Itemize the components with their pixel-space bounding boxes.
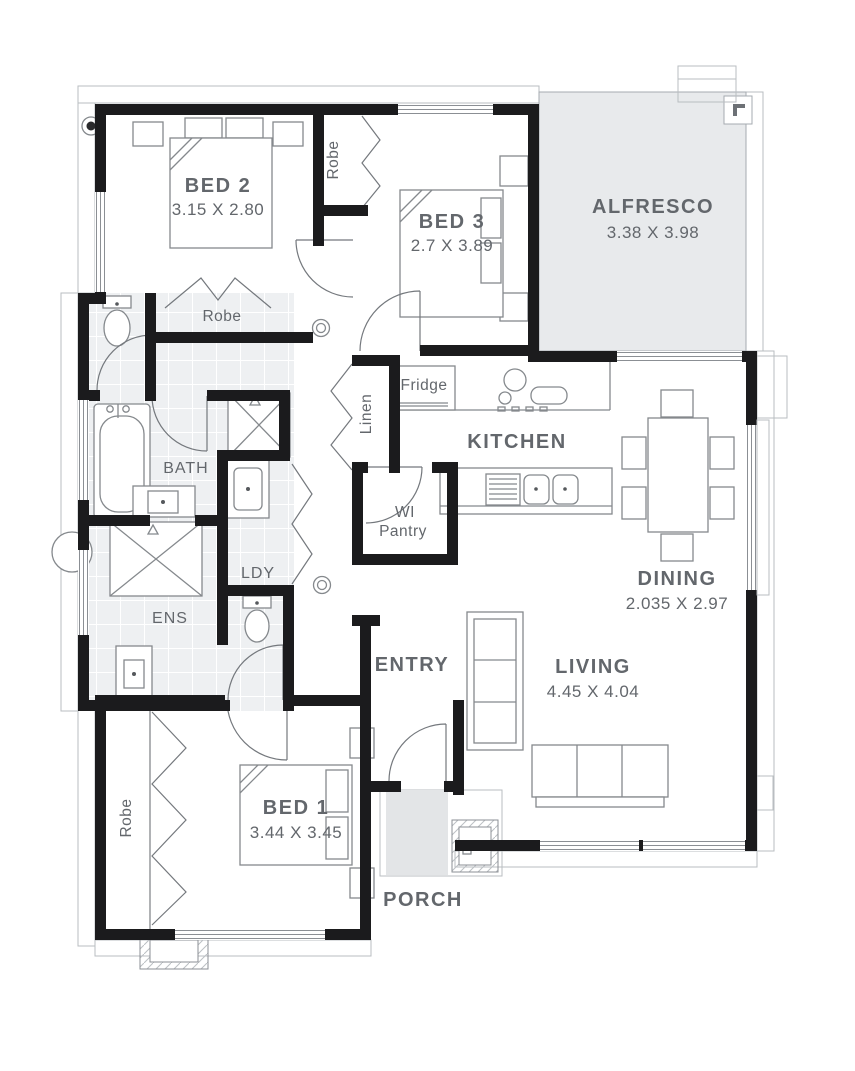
tv-unit — [467, 612, 523, 750]
bed1-dims: 3.44 X 3.45 — [250, 823, 342, 842]
alfresco-area — [539, 92, 746, 351]
floor-plan-canvas: BED 2 3.15 X 2.80 Robe BED 3 2.7 X 3.89 … — [0, 0, 855, 1071]
dining-dims: 2.035 X 2.97 — [626, 594, 728, 613]
porch-label: PORCH — [383, 889, 463, 911]
floor-plan-page: BED 2 3.15 X 2.80 Robe BED 3 2.7 X 3.89 … — [0, 0, 855, 1071]
bed2-label: BED 2 — [185, 175, 251, 197]
ens-shower — [110, 522, 202, 596]
laundry-tub — [227, 460, 269, 518]
dining-window — [746, 420, 769, 595]
meter-box — [757, 356, 787, 418]
smoke-alarm — [313, 320, 331, 594]
bed1-window — [175, 929, 325, 940]
laundry-label: LDY — [241, 565, 275, 582]
service-box — [757, 776, 773, 810]
kitchen-island — [440, 468, 612, 514]
bed2-dims: 3.15 X 2.80 — [172, 200, 264, 219]
living-window — [540, 840, 745, 851]
alfresco-corner-post — [724, 96, 752, 124]
bed3-dims: 2.7 X 3.89 — [411, 236, 494, 255]
dining-setting — [622, 390, 734, 561]
alfresco-label: ALFRESCO — [592, 196, 714, 218]
linen-label: Linen — [358, 394, 375, 434]
pantry-label-line1: WI — [395, 504, 415, 521]
wc-toilet — [103, 296, 131, 346]
bath-window — [78, 400, 89, 500]
bed2-window — [95, 192, 106, 292]
living-dims: 4.45 X 4.04 — [547, 682, 639, 701]
bed2-robe-label: Robe — [202, 308, 241, 325]
front-pier-core — [150, 940, 198, 962]
alfresco-dims: 3.38 X 3.98 — [607, 223, 699, 242]
sofa — [532, 745, 668, 807]
ens-label: ENS — [152, 610, 188, 627]
dining-table — [648, 418, 708, 532]
bath-vanity — [133, 486, 195, 517]
living-label: LIVING — [555, 656, 631, 678]
fridge-label: Fridge — [401, 377, 448, 394]
porch-area — [386, 790, 448, 875]
bed3-robe-label: Robe — [325, 140, 342, 179]
pantry-label-line2: Pantry — [379, 523, 427, 540]
bed1-label: BED 1 — [263, 797, 329, 819]
dining-label: DINING — [638, 568, 717, 590]
ens-window — [78, 550, 89, 635]
ens-vanity — [116, 646, 152, 702]
bath-label: BATH — [163, 460, 208, 477]
cooktop — [504, 369, 526, 391]
bed1-robe-label: Robe — [118, 798, 135, 837]
bed3-label: BED 3 — [419, 211, 485, 233]
alfresco-stacker-door — [613, 351, 746, 362]
ens-toilet — [243, 596, 271, 642]
entry-label: ENTRY — [375, 654, 450, 676]
kitchen-label: KITCHEN — [467, 431, 566, 453]
bed3-window — [398, 104, 493, 115]
